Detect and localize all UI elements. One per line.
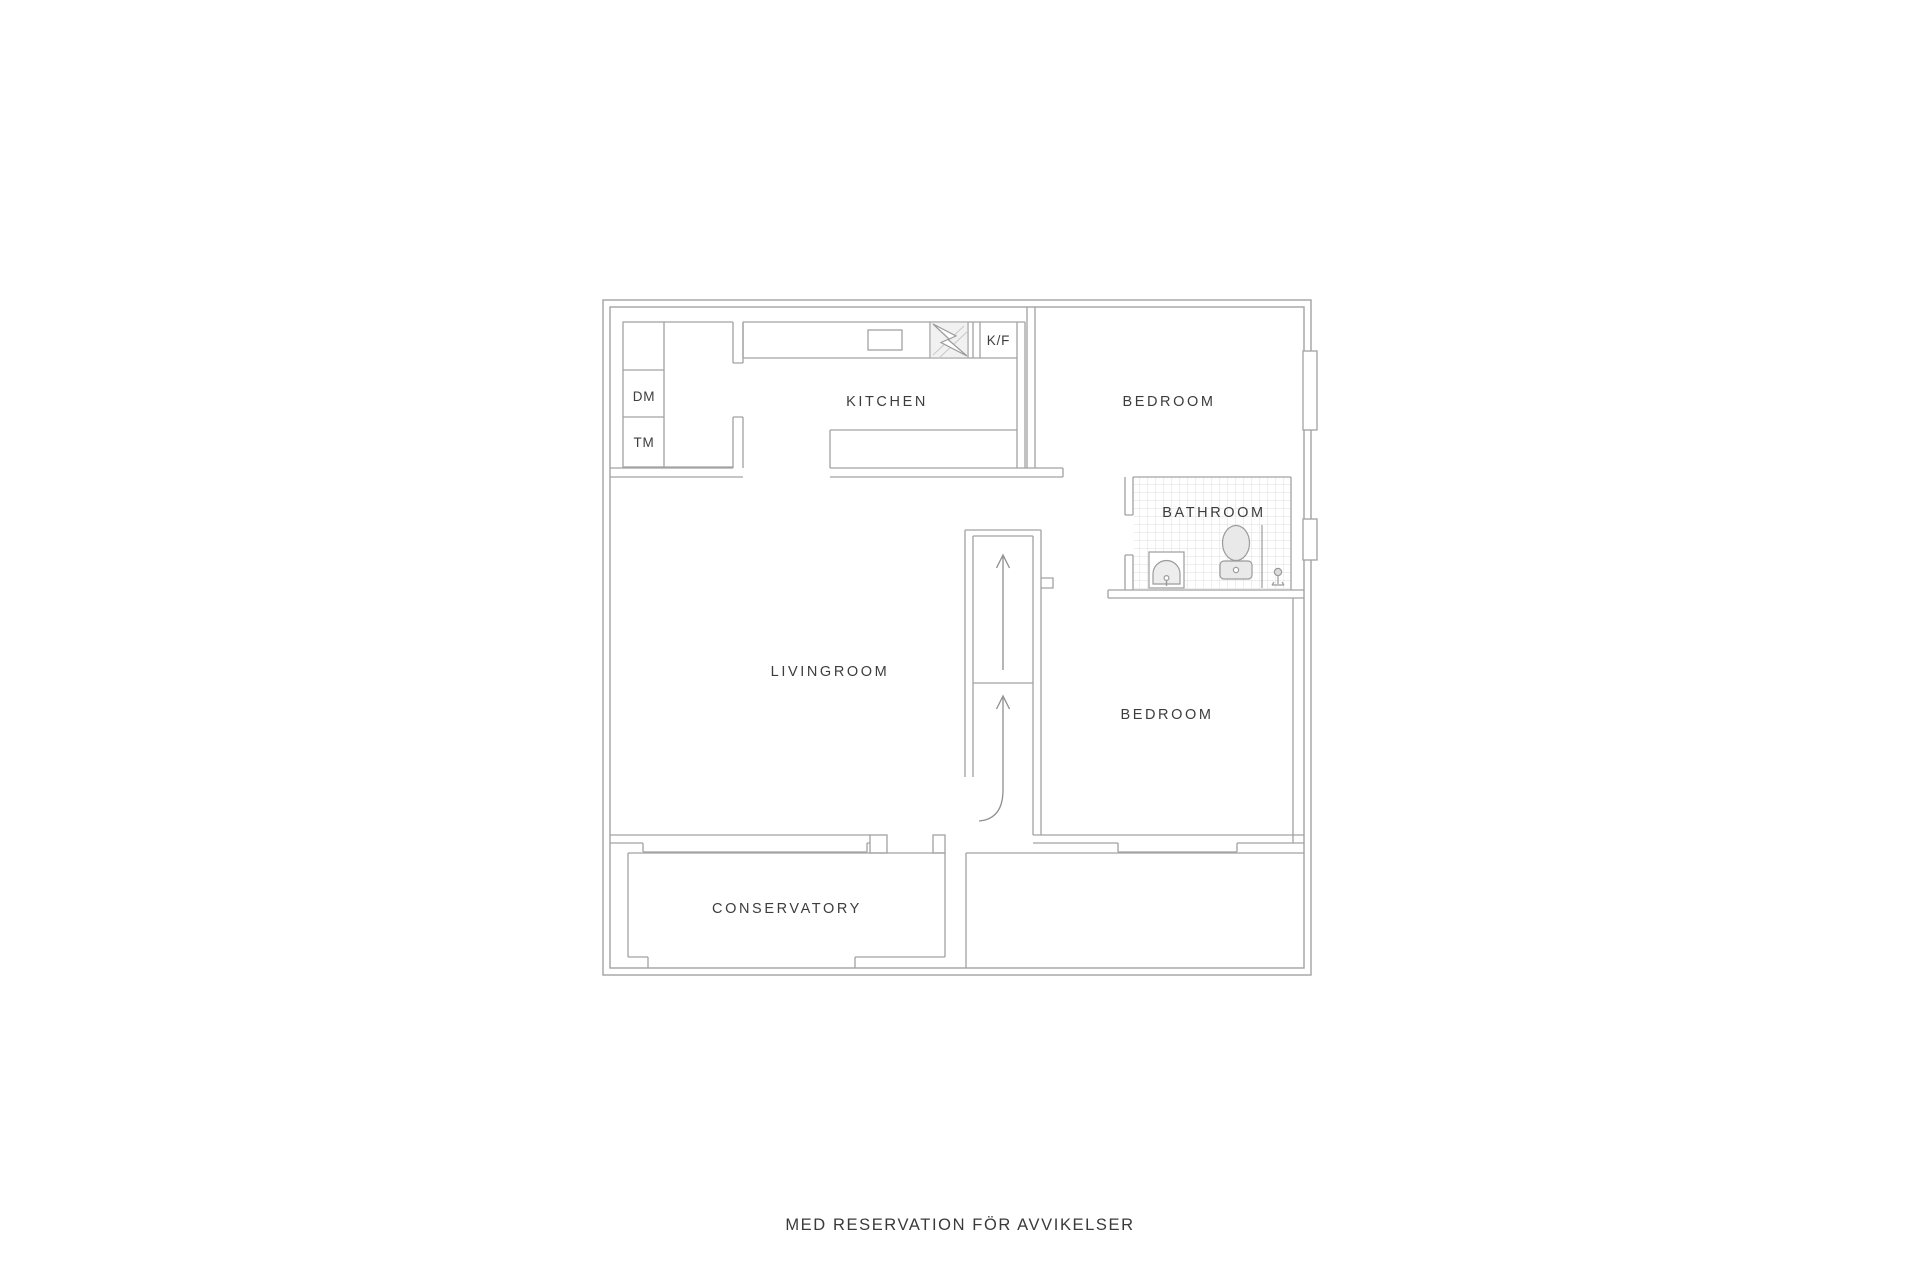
- floorplan-page: { "plan": { "rooms": { "kitchen": "KITCH…: [0, 0, 1920, 1280]
- fridge-freezer-label: K/F: [987, 333, 1010, 348]
- livingroom-window-icon: [610, 835, 870, 852]
- conservatory-label: CONSERVATORY: [712, 901, 862, 917]
- bathroom-label: BATHROOM: [1162, 505, 1266, 521]
- bedroom-window-icon: [1303, 351, 1317, 430]
- kitchen-sink-icon: [868, 330, 902, 350]
- livingroom-label: LIVINGROOM: [771, 664, 890, 680]
- lower-right-room-walls: [966, 853, 1304, 968]
- stairs-up-arrows: [979, 555, 1010, 821]
- dishwasher-label: DM: [633, 389, 656, 404]
- bedroom-window-bottom-icon: [1033, 598, 1304, 852]
- washing-machine-label: TM: [633, 435, 654, 450]
- bathroom-window-icon: [1303, 519, 1317, 560]
- bedroom-bottom-label: BEDROOM: [1120, 707, 1213, 723]
- disclaimer-text: MED RESERVATION FÖR AVVIKELSER: [0, 1216, 1920, 1235]
- kitchen-counter: [743, 322, 1017, 358]
- toilet-icon: [1220, 526, 1252, 580]
- stove-icon: [931, 323, 968, 358]
- kitchen-label: KITCHEN: [846, 394, 928, 410]
- bedroom-top-label: BEDROOM: [1122, 394, 1215, 410]
- right-wall-window-niches: [1303, 351, 1317, 560]
- room-labels: KITCHEN BEDROOM BATHROOM LIVINGROOM BEDR…: [633, 333, 1266, 917]
- floorplan-svg: KITCHEN BEDROOM BATHROOM LIVINGROOM BEDR…: [603, 300, 1328, 980]
- kitchen-island: [830, 430, 1017, 468]
- floorplan-drawing: KITCHEN BEDROOM BATHROOM LIVINGROOM BEDR…: [603, 300, 1328, 980]
- bathroom-sink-icon: [1149, 552, 1184, 588]
